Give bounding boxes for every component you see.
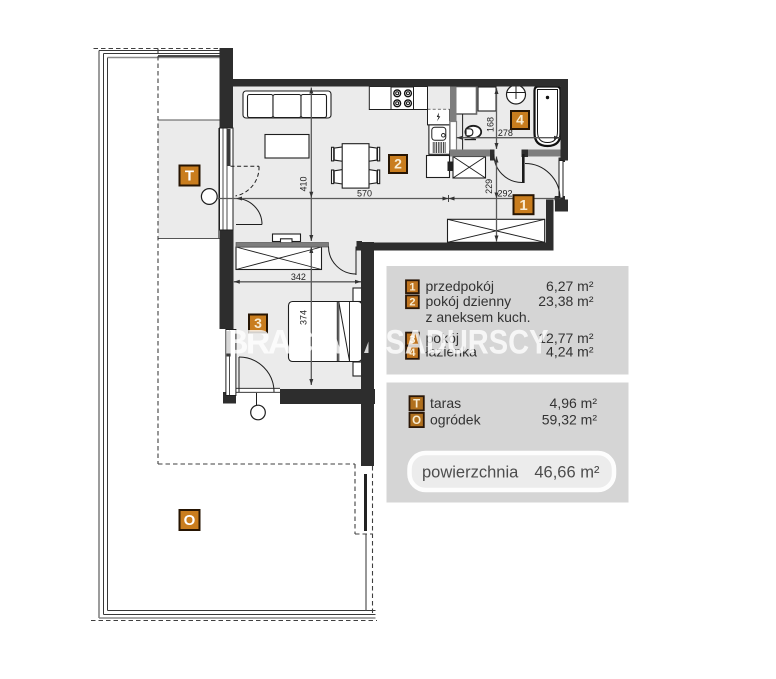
svg-text:23,38 m²: 23,38 m² xyxy=(538,293,594,309)
svg-text:SADURSCY: SADURSCY xyxy=(386,324,549,362)
svg-text:4: 4 xyxy=(516,112,524,128)
svg-text:2: 2 xyxy=(394,156,402,172)
svg-text:taras: taras xyxy=(430,395,461,411)
svg-text:1: 1 xyxy=(409,282,415,294)
svg-text:570: 570 xyxy=(357,189,372,199)
svg-text:292: 292 xyxy=(497,189,512,199)
svg-text:229: 229 xyxy=(484,179,494,194)
svg-text:4,24 m²: 4,24 m² xyxy=(546,344,594,360)
svg-text:T: T xyxy=(185,168,194,185)
svg-text:O: O xyxy=(184,512,196,529)
svg-text:59,32 m²: 59,32 m² xyxy=(542,412,598,428)
svg-text:BRACIA: BRACIA xyxy=(224,324,342,362)
svg-text:T: T xyxy=(413,399,420,411)
svg-text:410: 410 xyxy=(299,176,309,191)
svg-text:powierzchnia: powierzchnia xyxy=(422,464,519,482)
svg-text:ogródek: ogródek xyxy=(430,412,482,428)
svg-text:6,27 m²: 6,27 m² xyxy=(546,278,594,294)
svg-text:342: 342 xyxy=(291,272,306,282)
svg-text:2: 2 xyxy=(409,297,415,309)
svg-text:1: 1 xyxy=(519,197,527,214)
svg-text:168: 168 xyxy=(486,117,496,132)
svg-text:4,96 m²: 4,96 m² xyxy=(550,395,598,411)
svg-text:pokój dzienny: pokój dzienny xyxy=(426,293,512,309)
svg-text:przedpokój: przedpokój xyxy=(426,278,495,294)
svg-text:46,66 m²: 46,66 m² xyxy=(534,464,600,482)
svg-text:O: O xyxy=(412,415,421,427)
